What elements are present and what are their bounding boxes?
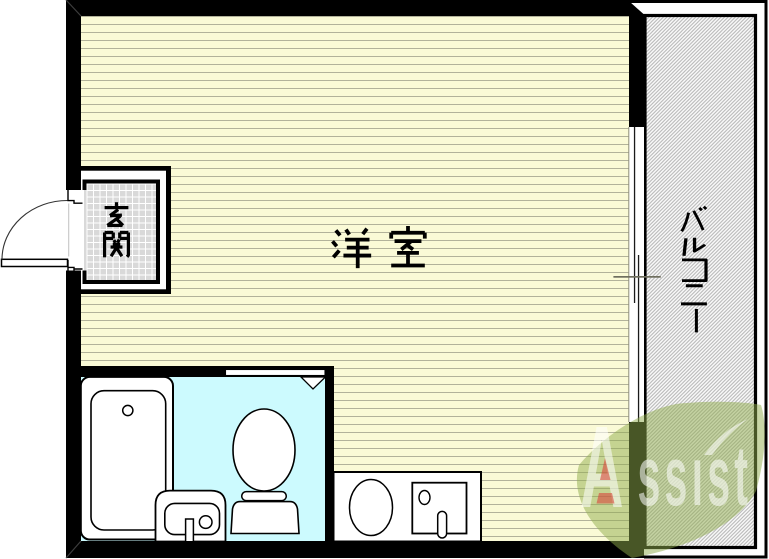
svg-text:A: A (580, 402, 624, 532)
svg-text:ssıst: ssıst (638, 430, 753, 524)
